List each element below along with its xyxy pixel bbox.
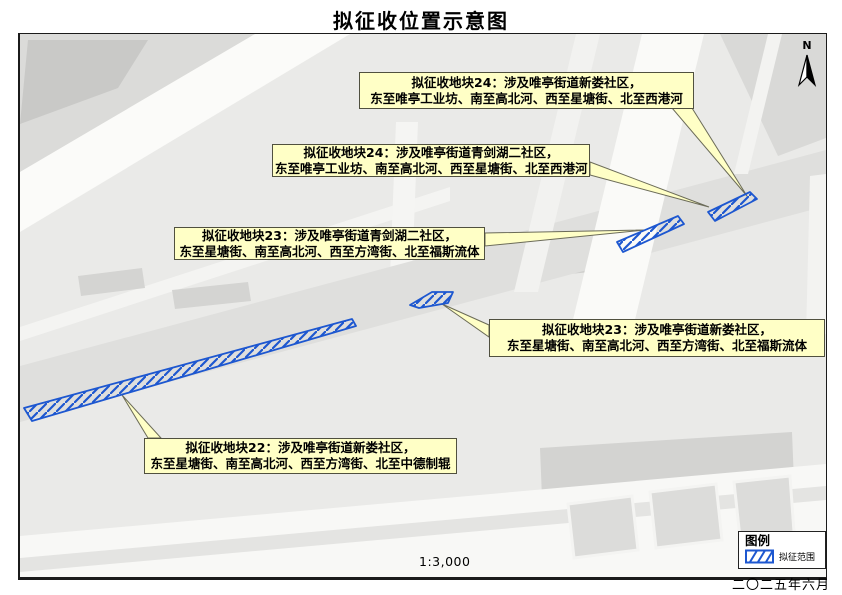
callout-line2: 东至星塘街、南至高北河、西至方湾街、北至福斯流体 — [177, 244, 482, 260]
callout-block23-xinlou: 拟征收地块23：涉及唯亭街道新娄社区， 东至星塘街、南至高北河、西至方湾街、北至… — [489, 319, 825, 357]
callout-block22-xinlou: 拟征收地块22：涉及唯亭街道新娄社区， 东至星塘街、南至高北河、西至方湾街、北至… — [144, 438, 457, 474]
callout-line1: 拟征收地块24：涉及唯亭街道青剑湖二社区， — [275, 145, 587, 161]
callout-block23-qingjianhu2: 拟征收地块23：涉及唯亭街道青剑湖二社区， 东至星塘街、南至高北河、西至方湾街、… — [174, 227, 485, 260]
callout-line1: 拟征收地块22：涉及唯亭街道新娄社区， — [147, 440, 454, 456]
callout-line2: 东至星塘街、南至高北河、西至方湾街、北至中德制辊 — [147, 456, 454, 472]
callout-block24-xinlou: 拟征收地块24：涉及唯亭街道新娄社区， 东至唯亭工业坊、南至高北河、西至星塘街、… — [359, 72, 694, 109]
callout-line2: 东至唯亭工业坊、南至高北河、西至星塘街、北至西港河 — [275, 161, 587, 177]
map-drawing — [20, 34, 826, 577]
callout-line1: 拟征收地块23：涉及唯亭街道新娄社区， — [492, 322, 822, 338]
north-label: N — [792, 40, 822, 52]
legend-title: 图例 — [745, 534, 825, 548]
page-title: 拟征收位置示意图 — [0, 5, 842, 34]
callout-line1: 拟征收地块24：涉及唯亭街道新娄社区， — [362, 75, 691, 91]
legend-item-label: 拟征范围 — [779, 550, 815, 563]
hatch-swatch-icon — [745, 549, 775, 564]
map-date: 二〇二五年六月 — [732, 574, 830, 593]
callout-line2: 东至唯亭工业坊、南至高北河、西至星塘街、北至西港河 — [362, 91, 691, 107]
north-arrow: N — [792, 40, 822, 96]
map-scale: 1:3,000 — [419, 554, 470, 569]
legend-item: 拟征范围 — [745, 549, 825, 564]
north-arrow-icon — [793, 52, 821, 92]
map-canvas: 拟征收地块24：涉及唯亭街道新娄社区， 东至唯亭工业坊、南至高北河、西至星塘街、… — [18, 33, 827, 580]
callout-block24-qingjianhu2: 拟征收地块24：涉及唯亭街道青剑湖二社区， 东至唯亭工业坊、南至高北河、西至星塘… — [272, 144, 590, 177]
callout-line2: 东至星塘街、南至高北河、西至方湾街、北至福斯流体 — [492, 338, 822, 354]
callout-line1: 拟征收地块23：涉及唯亭街道青剑湖二社区， — [177, 228, 482, 244]
legend: 图例 拟征范围 — [738, 531, 826, 569]
